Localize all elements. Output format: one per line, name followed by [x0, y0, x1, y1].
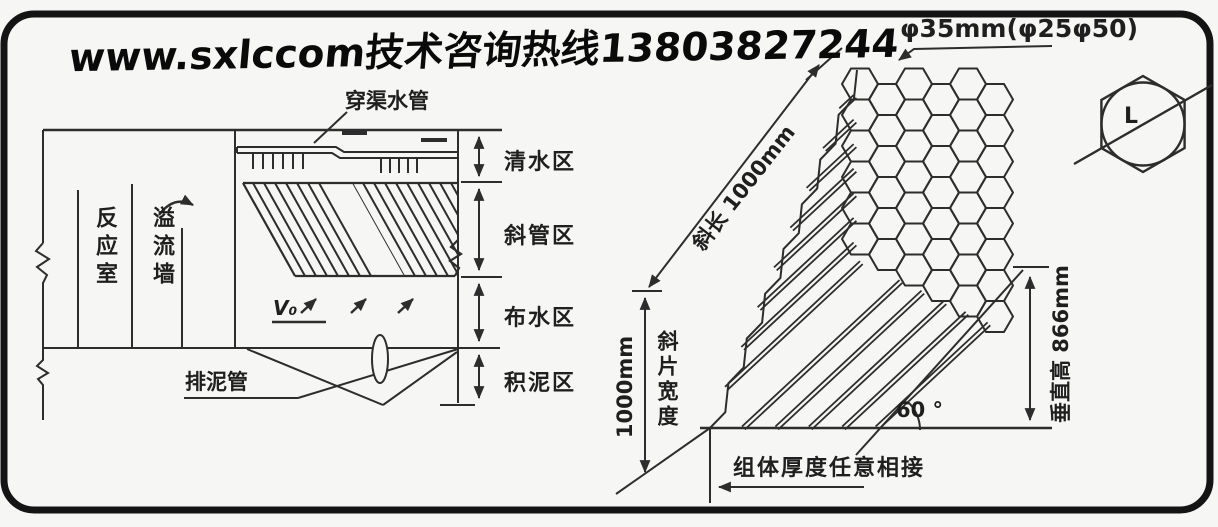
label-angle-60: 60 °: [896, 398, 943, 422]
tube-zone-hatch: [198, 183, 514, 276]
drain-pipe-ellipse: [372, 335, 388, 383]
hex-detail: [1074, 76, 1212, 172]
zone-dimensions: [440, 137, 502, 405]
frame-border: [4, 14, 1210, 510]
label-width-1000: 1000mm: [613, 332, 637, 442]
label-tube-diameter: φ35mm(φ25φ50): [900, 14, 1138, 43]
label-hex-l: L: [1124, 104, 1138, 129]
zone-label-clear-water: 清水区: [504, 144, 576, 176]
label-module-note: 组体厚度任意相接: [733, 450, 925, 482]
zone-label-sludge: 积泥区: [504, 365, 576, 397]
label-v0: V₀: [273, 296, 297, 320]
label-reaction-chamber: 反应室: [88, 206, 120, 290]
label-sheet-width: 斜片宽度: [652, 330, 682, 430]
zone-label-tube: 斜管区: [504, 218, 576, 250]
zone-label-distribution: 布水区: [504, 300, 576, 332]
collection-trough: [237, 112, 458, 173]
label-overflow-wall: 溢流墙: [145, 206, 177, 290]
label-channel-pipe: 穿渠水管: [345, 85, 429, 115]
label-sludge-pipe: 排泥管: [185, 366, 248, 396]
label-vertical-height: 垂直高 866mm: [1045, 273, 1075, 423]
honeycomb-face: [842, 69, 1013, 333]
